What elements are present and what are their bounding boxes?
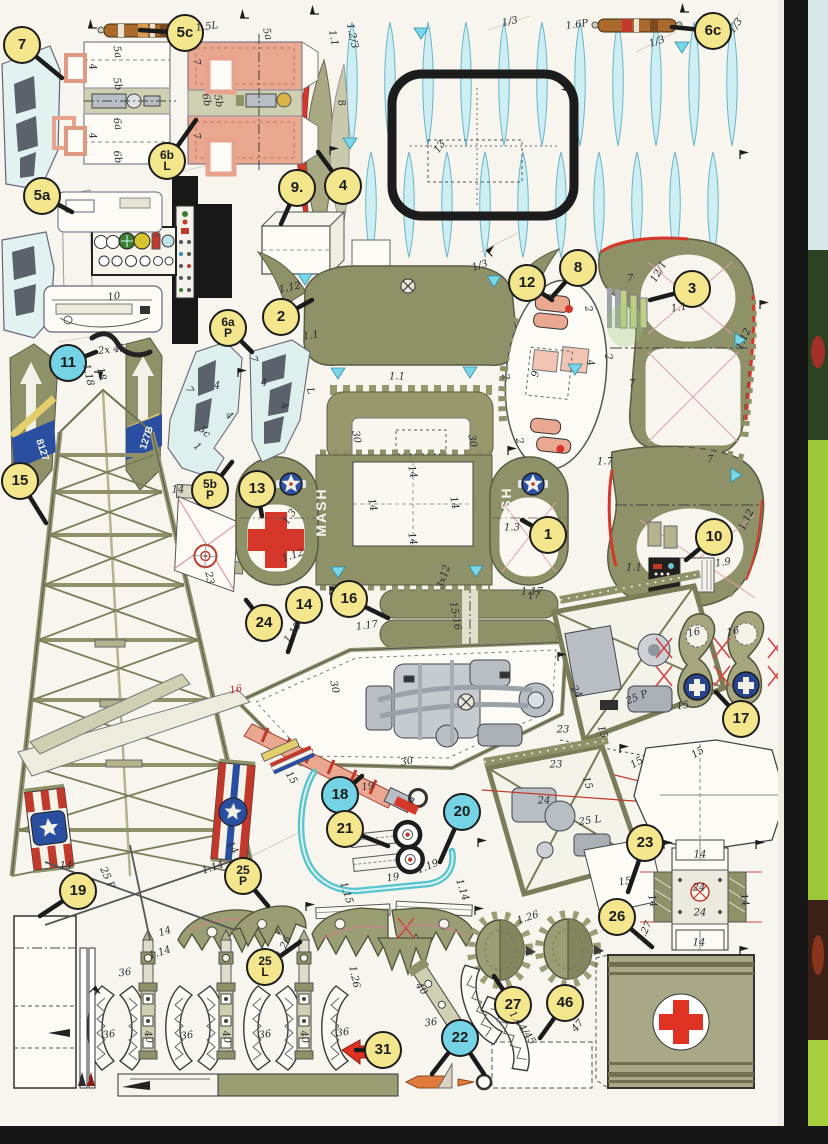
cabin-wall-panels	[66, 34, 318, 174]
rotor-grip-stick-6c	[592, 19, 682, 32]
model-sheet-page: 75c6bL5a9.426aP12836c11155bP131102414161…	[0, 0, 828, 1144]
rotor-grip-stick-5c	[98, 24, 184, 37]
sheet-artwork	[0, 0, 828, 1144]
skid-cross-tube-strip	[118, 1074, 398, 1096]
part1-fuselage-floor	[236, 454, 568, 586]
part46-template	[492, 1042, 592, 1088]
red-cross-pannier-cover	[596, 955, 754, 1088]
